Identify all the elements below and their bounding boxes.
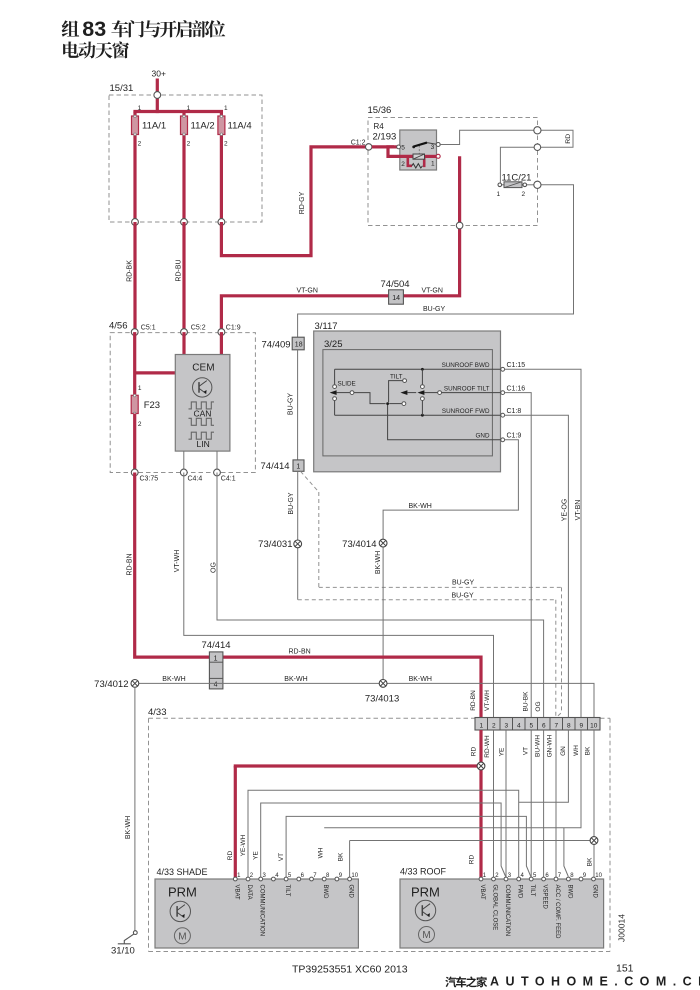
svg-text:M: M — [422, 930, 430, 941]
svg-text:2: 2 — [187, 141, 191, 148]
svg-text:1: 1 — [431, 160, 435, 167]
svg-text:73/4014: 73/4014 — [342, 539, 376, 550]
svg-text:BK-WH: BK-WH — [409, 676, 432, 683]
svg-text:5: 5 — [401, 144, 405, 151]
svg-text:BU-WH: BU-WH — [534, 735, 541, 757]
svg-text:74/409: 74/409 — [262, 340, 291, 351]
svg-text:14: 14 — [392, 295, 400, 302]
svg-text:BU-GY: BU-GY — [452, 580, 475, 587]
svg-text:WH: WH — [573, 745, 580, 756]
svg-text:WH: WH — [318, 847, 325, 858]
svg-text:7: 7 — [554, 722, 558, 729]
svg-text:C1:16: C1:16 — [507, 385, 526, 392]
svg-text:VBAT: VBAT — [233, 885, 239, 901]
svg-text:TILT: TILT — [390, 374, 403, 381]
svg-text:6: 6 — [542, 722, 546, 729]
svg-text:C1:9: C1:9 — [226, 325, 241, 332]
svg-text:SLIDE: SLIDE — [338, 380, 356, 387]
svg-text:18: 18 — [295, 342, 303, 349]
svg-text:1: 1 — [479, 722, 483, 729]
svg-text:15/36: 15/36 — [368, 105, 392, 116]
svg-text:PRM: PRM — [168, 885, 197, 900]
svg-text:BK-WH: BK-WH — [409, 503, 432, 510]
svg-text:83: 83 — [82, 17, 106, 41]
svg-text:74/414: 74/414 — [261, 461, 290, 472]
svg-text:VT: VT — [278, 853, 285, 861]
svg-text:3/117: 3/117 — [315, 321, 338, 332]
svg-text:RD: RD — [565, 134, 572, 144]
svg-text:AUTOHOME.COM.CN: AUTOHOME.COM.CN — [490, 975, 700, 989]
svg-text:C1:15: C1:15 — [507, 362, 526, 369]
svg-text:BK-WH: BK-WH — [375, 551, 382, 574]
svg-text:BWD: BWD — [566, 885, 572, 900]
svg-text:VT-WH: VT-WH — [174, 550, 181, 573]
svg-text:BU-GY: BU-GY — [452, 593, 475, 600]
svg-text:BU-GY: BU-GY — [423, 306, 446, 313]
svg-text:PRM: PRM — [411, 885, 440, 900]
svg-text:C5:2: C5:2 — [191, 325, 206, 332]
svg-text:2: 2 — [138, 141, 142, 148]
svg-text:VBAT: VBAT — [479, 885, 485, 901]
svg-text:RD-WH: RD-WH — [484, 735, 491, 758]
svg-text:73/4031: 73/4031 — [258, 539, 292, 550]
svg-text:4/56: 4/56 — [109, 321, 128, 332]
svg-text:BK: BK — [586, 857, 593, 866]
svg-text:GND: GND — [476, 433, 490, 440]
svg-text:RD-BK: RD-BK — [126, 260, 133, 282]
svg-text:4/33 ROOF: 4/33 ROOF — [400, 866, 447, 876]
svg-text:CEM: CEM — [192, 363, 214, 374]
svg-text:151: 151 — [616, 963, 634, 975]
svg-text:3/25: 3/25 — [324, 339, 343, 350]
svg-text:1: 1 — [138, 385, 142, 392]
svg-text:4: 4 — [214, 682, 218, 689]
svg-text:2: 2 — [522, 191, 526, 198]
svg-text:SUNROOF BWD: SUNROOF BWD — [442, 362, 490, 369]
svg-text:10: 10 — [590, 722, 598, 729]
svg-text:C3:75: C3:75 — [140, 476, 159, 483]
svg-text:9: 9 — [579, 722, 583, 729]
svg-text:1: 1 — [187, 105, 191, 112]
svg-text:TILT: TILT — [284, 885, 290, 897]
svg-text:BK-WH: BK-WH — [284, 676, 307, 683]
svg-text:C4:4: C4:4 — [188, 476, 203, 483]
svg-text:11A/2: 11A/2 — [191, 121, 215, 132]
svg-text:CAN: CAN — [194, 408, 212, 418]
svg-text:C5:1: C5:1 — [141, 325, 156, 332]
svg-text:F23: F23 — [144, 400, 160, 411]
svg-text:3: 3 — [431, 144, 435, 151]
svg-text:C1:8: C1:8 — [507, 408, 522, 415]
svg-text:TILT: TILT — [529, 885, 535, 897]
svg-text:OG: OG — [210, 562, 217, 573]
svg-text:RD-BN: RD-BN — [470, 690, 477, 711]
svg-text:VT-WH: VT-WH — [484, 690, 491, 711]
svg-text:4/33: 4/33 — [148, 707, 167, 718]
svg-text:RD: RD — [468, 855, 475, 865]
svg-text:2/193: 2/193 — [373, 132, 397, 143]
svg-text:31/10: 31/10 — [111, 946, 135, 957]
svg-text:VT: VT — [522, 747, 529, 755]
svg-text:2: 2 — [224, 141, 228, 148]
svg-text:74/414: 74/414 — [202, 640, 231, 651]
svg-text:RD-GY: RD-GY — [299, 191, 306, 214]
svg-text:C1:9: C1:9 — [507, 433, 522, 440]
svg-text:VT-BN: VT-BN — [575, 500, 582, 521]
svg-text:SUNROOF FWD: SUNROOF FWD — [442, 408, 490, 415]
svg-text:RD: RD — [227, 851, 234, 861]
svg-text:10: 10 — [595, 873, 602, 879]
svg-text:RD-BN: RD-BN — [127, 553, 134, 575]
svg-text:VT-GN: VT-GN — [422, 288, 443, 295]
svg-text:OG: OG — [535, 701, 542, 711]
svg-text:BU-GY: BU-GY — [288, 492, 295, 515]
svg-text:DATA: DATA — [246, 885, 252, 900]
svg-text:10: 10 — [351, 873, 358, 879]
svg-text:ACC / COMF. FEED: ACC / COMF. FEED — [554, 885, 560, 940]
svg-text:COMMUNICATION: COMMUNICATION — [504, 885, 510, 937]
svg-text:BWD: BWD — [322, 885, 328, 900]
svg-text:R4: R4 — [374, 122, 385, 131]
svg-text:74/504: 74/504 — [381, 279, 410, 290]
svg-text:BK-WH: BK-WH — [125, 816, 132, 839]
svg-text:BU-GY: BU-GY — [288, 393, 295, 416]
svg-text:8: 8 — [567, 722, 571, 729]
svg-text:TP39253551 XC60 2013: TP39253551 XC60 2013 — [292, 964, 408, 976]
svg-text:YE: YE — [498, 747, 505, 756]
svg-text:5: 5 — [529, 722, 533, 729]
svg-text:30+: 30+ — [152, 69, 166, 79]
svg-text:COMMUNICATION: COMMUNICATION — [259, 885, 265, 937]
svg-text:YE: YE — [253, 851, 260, 860]
svg-text:RD: RD — [470, 747, 477, 757]
svg-text:73/4012: 73/4012 — [94, 679, 128, 690]
svg-text:4/33 SHADE: 4/33 SHADE — [157, 867, 208, 877]
svg-text:GND: GND — [592, 885, 598, 899]
svg-text:VT-GN: VT-GN — [297, 288, 318, 295]
svg-text:2: 2 — [401, 161, 405, 168]
svg-text:GN-WH: GN-WH — [546, 734, 553, 757]
svg-text:BK: BK — [338, 852, 345, 861]
svg-text:1: 1 — [138, 105, 142, 112]
svg-text:1: 1 — [224, 105, 228, 112]
svg-text:73/4013: 73/4013 — [365, 694, 399, 705]
svg-text:VSPEED: VSPEED — [542, 885, 548, 910]
svg-text:RD-BU: RD-BU — [175, 259, 182, 281]
svg-text:J00014: J00014 — [617, 914, 627, 942]
svg-text:BU-BK: BU-BK — [523, 691, 530, 712]
svg-text:BK: BK — [585, 746, 592, 755]
svg-text:C1:2: C1:2 — [351, 140, 366, 147]
svg-text:FWD: FWD — [517, 885, 523, 899]
svg-text:C4:1: C4:1 — [221, 476, 236, 483]
svg-text:11A/1: 11A/1 — [142, 121, 166, 132]
svg-text:11A/4: 11A/4 — [228, 121, 252, 132]
svg-text:3: 3 — [504, 722, 508, 729]
svg-text:SUNROOF TILT: SUNROOF TILT — [444, 385, 490, 392]
svg-text:4: 4 — [517, 722, 521, 729]
svg-text:YE-WH: YE-WH — [240, 834, 247, 856]
svg-text:15/31: 15/31 — [110, 83, 134, 94]
svg-text:RD-BN: RD-BN — [289, 648, 311, 655]
svg-text:LIN: LIN — [197, 439, 210, 449]
svg-text:GLOBAL CLOSE: GLOBAL CLOSE — [492, 885, 498, 931]
svg-text:GN: GN — [560, 746, 567, 756]
svg-text:2: 2 — [492, 722, 496, 729]
svg-text:1: 1 — [296, 464, 300, 471]
svg-text:M: M — [178, 931, 186, 942]
svg-text:1: 1 — [214, 655, 218, 662]
svg-text:2: 2 — [138, 421, 142, 428]
svg-text:BK-WH: BK-WH — [162, 676, 185, 683]
svg-text:GND: GND — [348, 885, 354, 899]
svg-text:YE-OG: YE-OG — [561, 499, 568, 522]
svg-text:1: 1 — [497, 191, 501, 198]
